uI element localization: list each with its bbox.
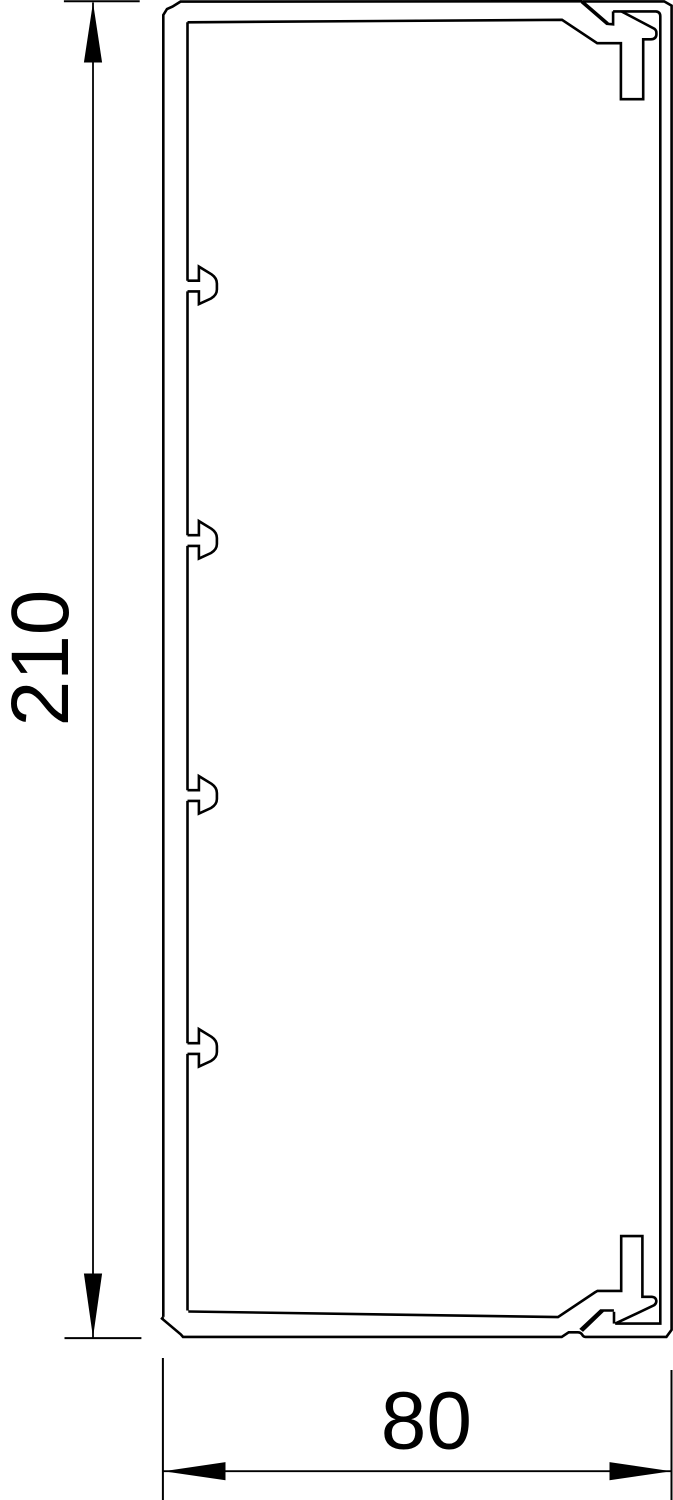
svg-text:80: 80: [381, 1375, 472, 1466]
svg-text:210: 210: [0, 590, 86, 727]
